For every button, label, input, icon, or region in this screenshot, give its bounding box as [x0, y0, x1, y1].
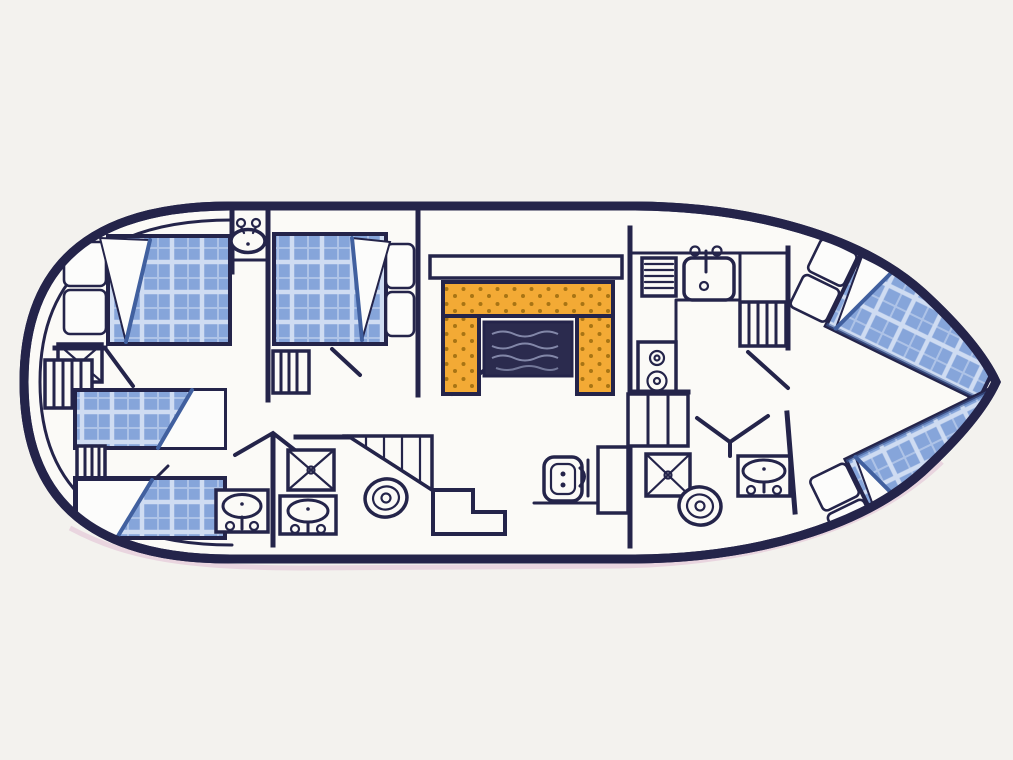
two-burner-stove — [638, 342, 676, 396]
shower-icon — [646, 454, 690, 496]
sideboard — [430, 256, 622, 278]
settee-right-arm — [577, 316, 613, 394]
shower-icon — [288, 450, 334, 490]
drainer-vent — [642, 258, 676, 296]
galley-cabinet — [628, 394, 688, 446]
helm-seat — [534, 457, 598, 503]
dining-table — [484, 322, 572, 376]
pillow — [64, 290, 106, 334]
helm-console — [598, 447, 628, 513]
cabin-ladder — [273, 351, 309, 393]
pillow — [386, 292, 414, 336]
scanned-floor-plan-page — [0, 0, 1013, 760]
vanity-basin — [216, 490, 268, 532]
wash-basin-icon — [280, 496, 336, 534]
companionway-ladder — [740, 302, 786, 346]
bunk-ladder — [77, 446, 105, 478]
settee-left-arm — [443, 316, 479, 394]
pillow — [386, 244, 414, 288]
boat-floor-plan — [0, 0, 1013, 760]
wash-basin-icon — [738, 456, 790, 496]
settee-top-bench — [443, 282, 613, 316]
